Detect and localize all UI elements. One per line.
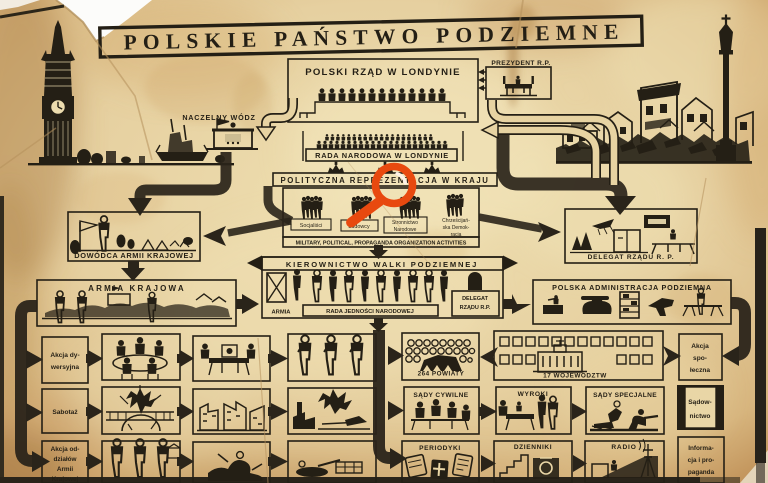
svg-text:Socjaliści: Socjaliści: [300, 223, 322, 229]
svg-text:Akcja dy-: Akcja dy-: [50, 352, 79, 359]
svg-text:cja i pro-: cja i pro-: [688, 457, 715, 464]
svg-text:SĄDY CYWILNE: SĄDY CYWILNE: [413, 392, 468, 399]
svg-text:DELEGAT RZĄDU R. P.: DELEGAT RZĄDU R. P.: [588, 254, 675, 261]
svg-text:POLITYCZNA REPREZENTACJA W KRA: POLITYCZNA REPREZENTACJA W KRAJU: [280, 176, 489, 185]
svg-text:racja: racja: [451, 232, 462, 238]
svg-text:wersyjna: wersyjna: [50, 364, 80, 371]
svg-text:POLSKI RZĄD W LONDYNIE: POLSKI RZĄD W LONDYNIE: [305, 67, 460, 78]
svg-text:KIEROWNICTWO WALKI PODZIEMNEJ: KIEROWNICTWO WALKI PODZIEMNEJ: [286, 260, 478, 269]
svg-text:nictwo: nictwo: [690, 413, 711, 420]
svg-text:ARMIA: ARMIA: [272, 310, 292, 316]
svg-text:RADA NARODOWA W LONDYNIE: RADA NARODOWA W LONDYNIE: [315, 151, 449, 160]
svg-text:ARMIA KRAJOWA: ARMIA KRAJOWA: [88, 284, 186, 293]
svg-text:paganda: paganda: [688, 469, 715, 476]
svg-text:Akcja od-: Akcja od-: [51, 446, 80, 453]
svg-text:Armii: Armii: [57, 466, 74, 473]
svg-text:RZĄDU R.P.: RZĄDU R.P.: [460, 305, 491, 311]
svg-text:RADA JEDNOŚCI NARODOWEJ: RADA JEDNOŚCI NARODOWEJ: [326, 308, 414, 315]
svg-text:RADIO: RADIO: [611, 444, 636, 451]
svg-text:SĄDY SPECJALNE: SĄDY SPECJALNE: [593, 392, 657, 399]
svg-text:Chrześcijań-: Chrześcijań-: [442, 218, 470, 224]
svg-text:DOWÓDCA ARMII KRAJOWEJ: DOWÓDCA ARMII KRAJOWEJ: [74, 251, 193, 260]
svg-text:PERIODYKI: PERIODYKI: [419, 445, 461, 452]
svg-text:Sądow-: Sądow-: [688, 399, 711, 406]
svg-text:PREZYDENT R.P.: PREZYDENT R.P.: [491, 60, 550, 67]
svg-text:DELEGAT: DELEGAT: [462, 296, 489, 302]
svg-text:Informa-: Informa-: [688, 445, 714, 452]
svg-text:DZIENNIKI: DZIENNIKI: [514, 444, 552, 451]
svg-text:Akcja: Akcja: [691, 343, 709, 350]
svg-text:spo-: spo-: [693, 355, 707, 362]
svg-text:łeczna: łeczna: [690, 367, 710, 374]
svg-text:264 POWIATY: 264 POWIATY: [418, 371, 465, 378]
svg-text:Narodowe: Narodowe: [394, 227, 417, 233]
svg-text:Krajowej: Krajowej: [52, 476, 79, 483]
svg-text:Sabotaż: Sabotaż: [52, 409, 78, 416]
svg-text:działów: działów: [53, 456, 76, 463]
svg-text:POLSKA ADMINISTRACJA PODZIEMNA: POLSKA ADMINISTRACJA PODZIEMNA: [552, 283, 712, 292]
svg-text:Stronnictwo: Stronnictwo: [392, 220, 418, 226]
svg-text:ska Demok-: ska Demok-: [443, 225, 470, 231]
